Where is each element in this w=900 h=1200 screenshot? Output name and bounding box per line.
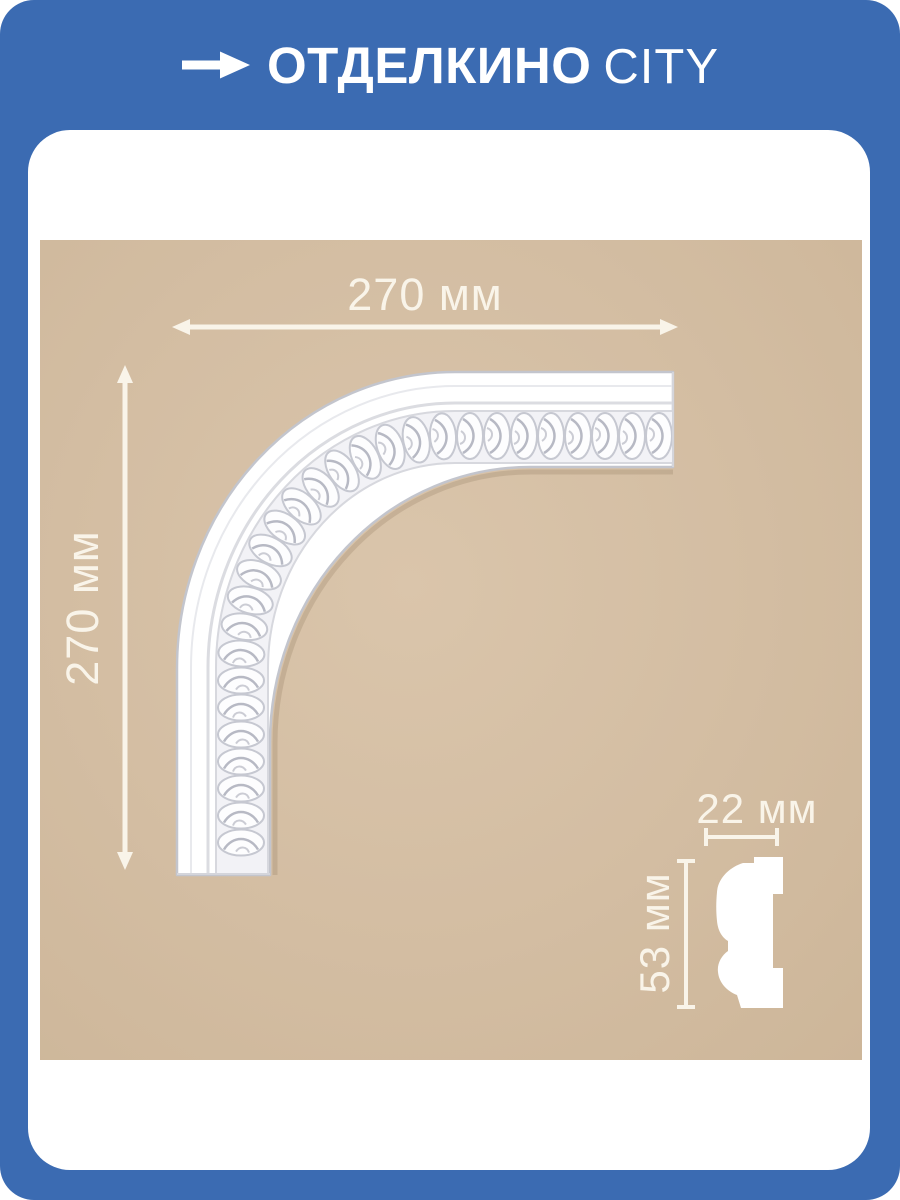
- ornament-leaf: [218, 749, 264, 775]
- ornament-leaf: [218, 776, 264, 802]
- product-card: 270 мм 270 мм: [28, 130, 870, 1170]
- brand-name: ОТДЕЛКИНО CITY: [267, 36, 719, 95]
- ornament-leaf: [218, 668, 264, 694]
- dimension-width-arrow-right: [660, 319, 678, 335]
- ornament-leaf: [484, 413, 510, 459]
- technical-drawing-area: 270 мм 270 мм: [40, 240, 862, 1060]
- dimension-height-label: 270 мм: [57, 530, 108, 685]
- ornament-leaf: [592, 413, 618, 459]
- corner-molding: [177, 372, 673, 875]
- ornament-leaf: [619, 413, 645, 459]
- ornament-leaf: [565, 413, 591, 459]
- brand-name-secondary: CITY: [603, 39, 719, 95]
- profile-height-dimension: [677, 860, 695, 1008]
- ornament-leaf: [511, 413, 537, 459]
- ornament-leaf: [218, 695, 264, 721]
- ornament-leaf: [218, 803, 264, 829]
- dimension-height: 270 мм: [57, 365, 133, 870]
- arrow-right-icon: [181, 50, 251, 80]
- profile-section: 22 мм 53 мм: [631, 785, 818, 1008]
- dimension-height-arrow-bottom: [117, 852, 133, 870]
- ornament-leaf: [218, 830, 264, 856]
- dimension-width: 270 мм: [172, 269, 678, 335]
- ornament-leaf: [538, 413, 564, 459]
- profile-shape: [716, 857, 783, 1008]
- brand-name-primary: ОТДЕЛКИНО: [267, 36, 591, 95]
- profile-height-label: 53 мм: [631, 872, 678, 993]
- brand-header: ОТДЕЛКИНО CITY: [0, 0, 900, 130]
- profile-width-label: 22 мм: [696, 785, 817, 832]
- ornament-leaf: [457, 413, 483, 459]
- ornament-leaf: [646, 413, 672, 459]
- ornament-leaf: [218, 722, 264, 748]
- dimension-width-label: 270 мм: [347, 269, 502, 320]
- corner-molding-drawing: 270 мм 270 мм: [40, 240, 862, 1060]
- dimension-height-arrow-top: [117, 365, 133, 383]
- product-image: ОТДЕЛКИНО CITY 270 мм: [0, 0, 900, 1200]
- dimension-width-arrow-left: [172, 319, 190, 335]
